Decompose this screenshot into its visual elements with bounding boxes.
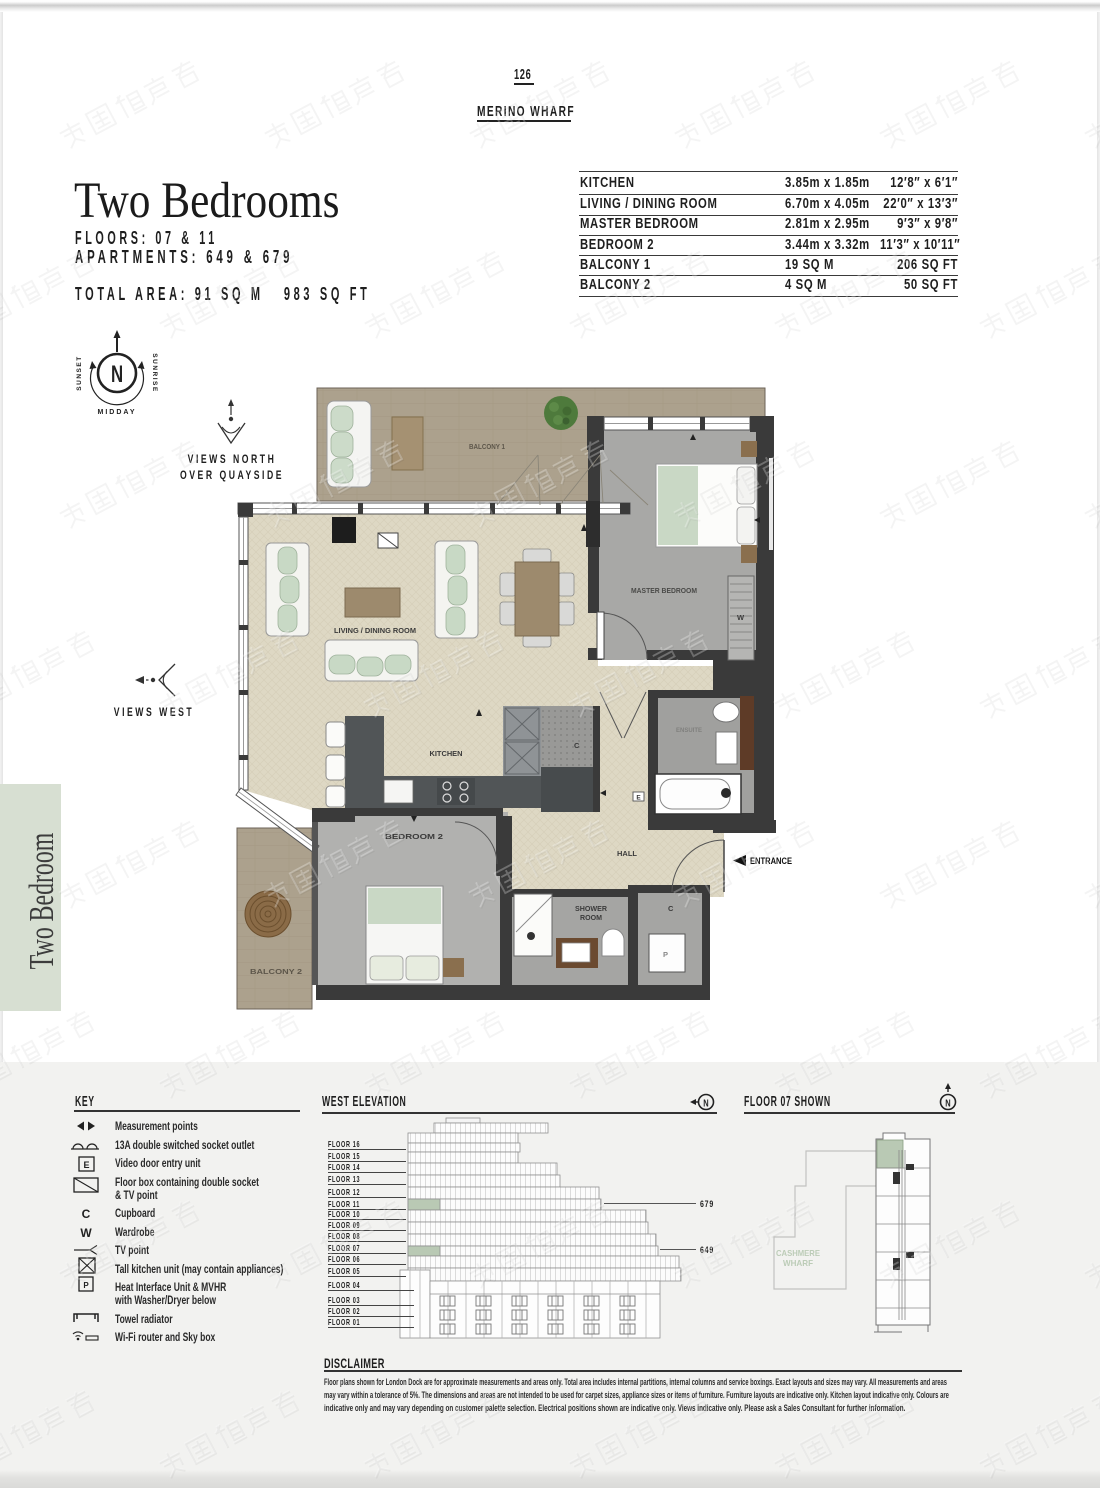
svg-text:ENTRANCE: ENTRANCE xyxy=(750,856,792,866)
svg-text:W: W xyxy=(80,1226,92,1240)
svg-text:SUNRISE: SUNRISE xyxy=(151,353,158,392)
svg-text:SHOWER: SHOWER xyxy=(575,906,607,913)
svg-text:WHARF: WHARF xyxy=(783,1258,813,1268)
svg-text:679: 679 xyxy=(700,1199,714,1209)
svg-text:C: C xyxy=(574,741,580,750)
svg-text:N: N xyxy=(111,361,123,388)
svg-text:SUNSET: SUNSET xyxy=(76,355,83,390)
svg-text:KITCHEN: KITCHEN xyxy=(430,749,463,758)
svg-text:MIDDAY: MIDDAY xyxy=(98,409,137,416)
svg-text:649: 649 xyxy=(700,1245,714,1255)
svg-text:N: N xyxy=(703,1097,708,1108)
svg-text:ENSUITE: ENSUITE xyxy=(676,728,702,734)
svg-text:C: C xyxy=(82,1207,91,1221)
svg-text:LIVING / DINING ROOM: LIVING / DINING ROOM xyxy=(334,626,416,635)
svg-text:HALL: HALL xyxy=(617,849,637,858)
svg-text:BALCONY 1: BALCONY 1 xyxy=(469,444,505,451)
svg-text:BEDROOM 2: BEDROOM 2 xyxy=(385,832,443,841)
svg-text:P: P xyxy=(83,1281,89,1290)
svg-text:E: E xyxy=(83,1160,89,1170)
svg-text:ROOM: ROOM xyxy=(580,915,602,922)
svg-text:MASTER BEDROOM: MASTER BEDROOM xyxy=(631,586,697,595)
svg-text:P: P xyxy=(663,950,668,959)
svg-text:N: N xyxy=(945,1097,950,1108)
svg-text:W: W xyxy=(737,613,745,622)
svg-text:E: E xyxy=(636,795,641,802)
svg-text:BALCONY 2: BALCONY 2 xyxy=(250,969,302,976)
svg-text:C: C xyxy=(668,904,674,913)
svg-text:CASHMERE: CASHMERE xyxy=(776,1248,820,1258)
